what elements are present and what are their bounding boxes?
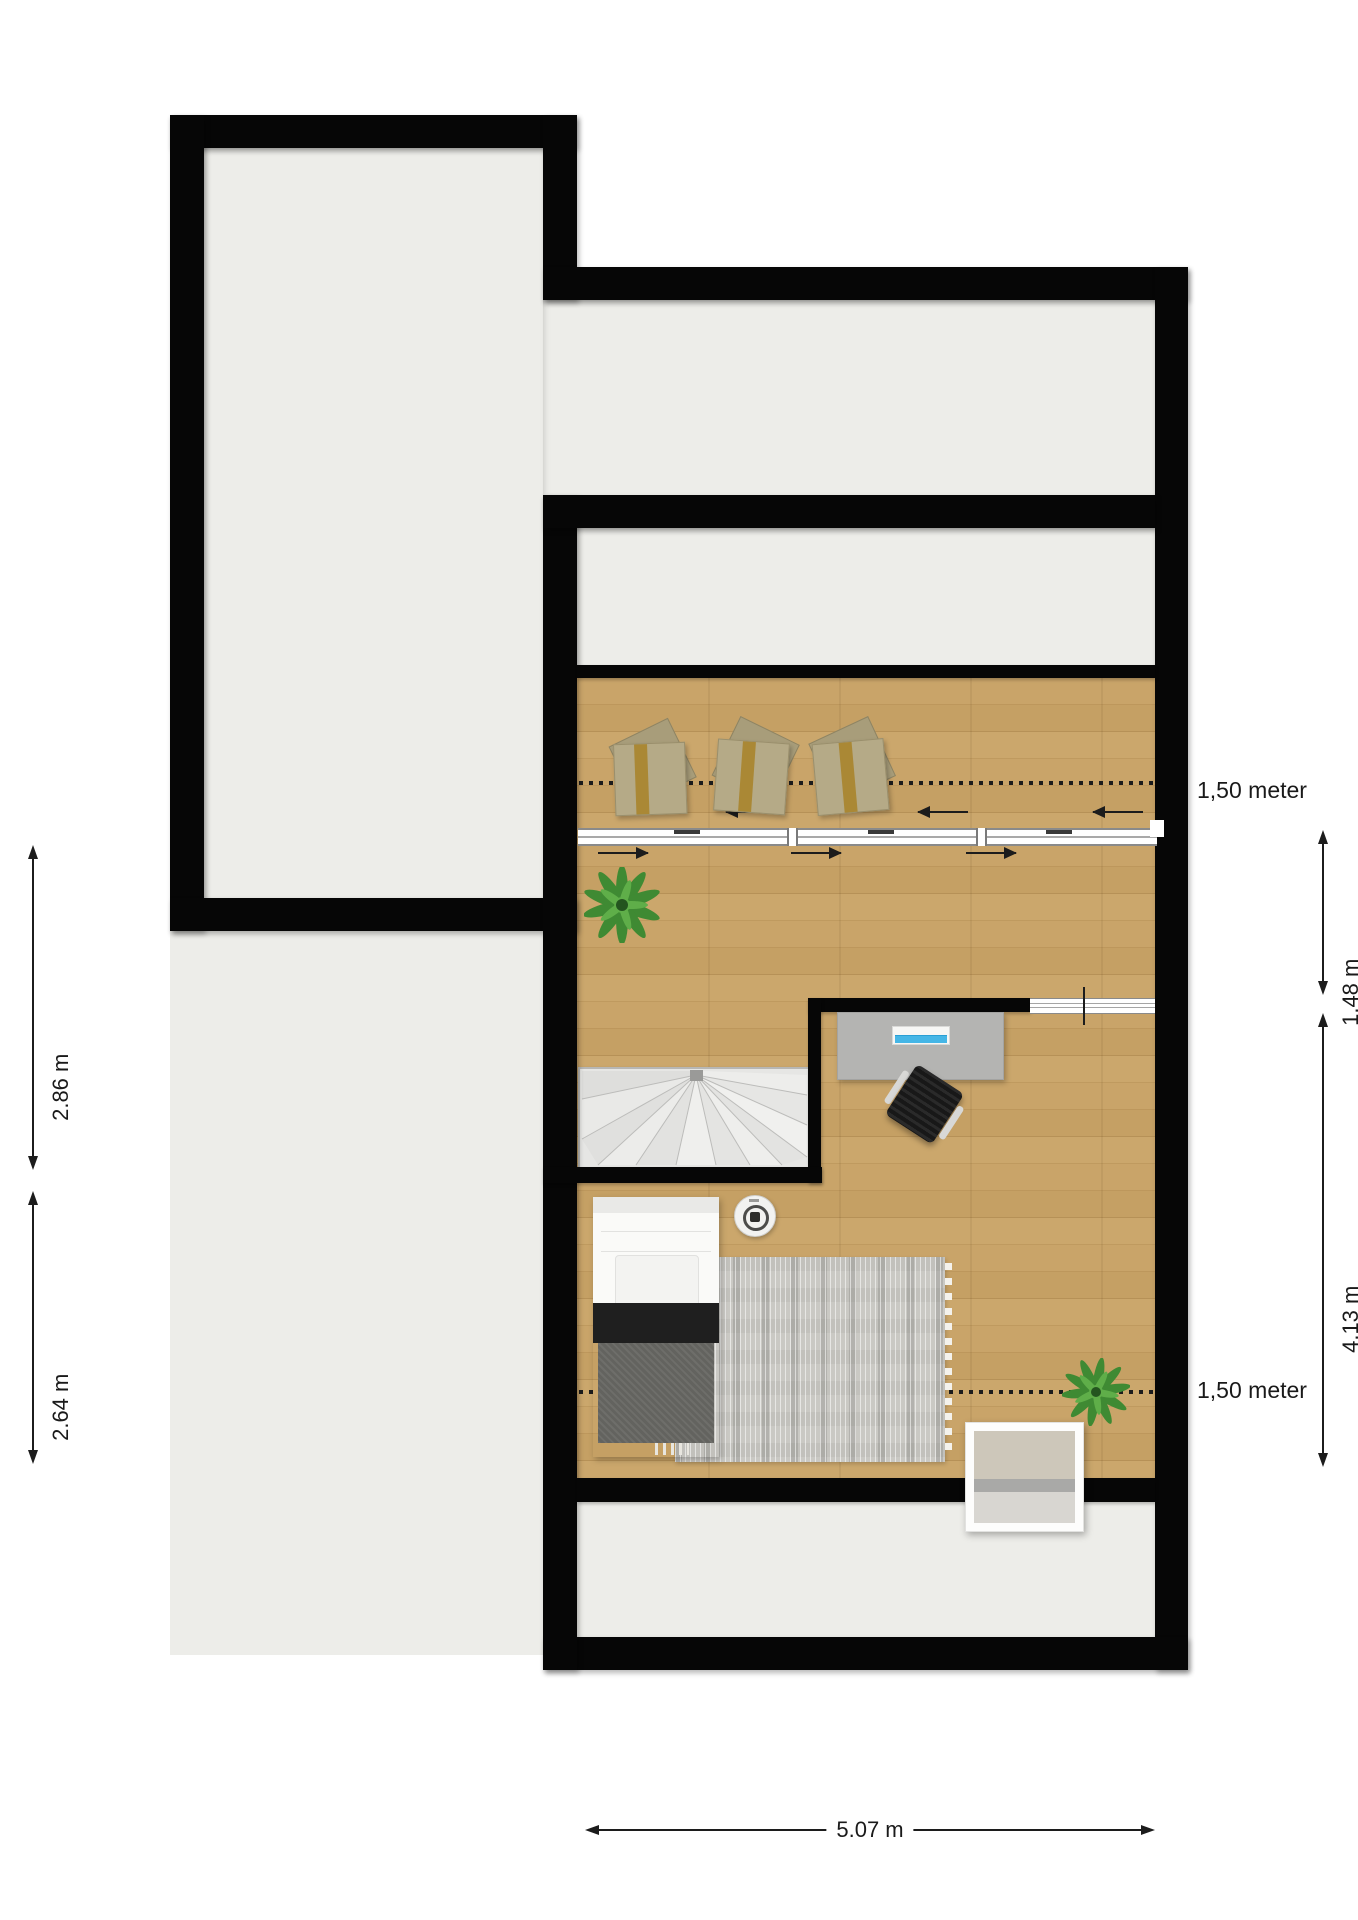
wall-desk-alcove-left (808, 998, 821, 1183)
dimension-right-lower-label: 4.13 m (1337, 1280, 1358, 1359)
headroom-label-upper: 1,50 meter (1197, 777, 1307, 804)
bed-blanket-fold (593, 1303, 719, 1343)
slide-arrow-right (791, 852, 841, 854)
wall-right-wing-top (543, 267, 1188, 300)
right-wing-top-strip-floor (543, 300, 1155, 495)
slide-arrow-left (918, 811, 968, 813)
dimension-right-upper-label: 1.48 m (1337, 952, 1358, 1031)
spiral-stairs (578, 1067, 811, 1169)
window-divider (976, 828, 987, 846)
dimension-left-lower: 2.64 m (19, 1191, 47, 1464)
dimension-bottom: 5.07 m (585, 1816, 1155, 1844)
laptop (892, 1026, 950, 1045)
wall-main-room-top (577, 665, 1155, 678)
plant-icon (584, 867, 660, 948)
alcove-window-tick (1083, 987, 1085, 1025)
plant-icon (1062, 1358, 1130, 1431)
wall-right-wing-bottom (543, 1637, 1188, 1670)
gift-box (613, 728, 690, 817)
alcove-sliding-window (1030, 998, 1155, 1014)
dimension-bottom-label: 5.07 m (826, 1817, 913, 1843)
window-divider (787, 828, 798, 846)
headroom-label-lower: 1,50 meter (1197, 1377, 1307, 1404)
wall-left-room-top (170, 115, 577, 148)
cabinet (965, 1422, 1084, 1532)
bed-blanket (598, 1343, 714, 1443)
slide-arrow-right (598, 852, 648, 854)
dimension-left-lower-label: 2.64 m (47, 1367, 75, 1446)
smoke-detector-icon (734, 1195, 776, 1237)
wall-desk-alcove-top (808, 998, 1030, 1012)
laptop-screen (895, 1035, 947, 1043)
rug-fringe (945, 1263, 952, 1456)
upper-left-room-floor (204, 148, 543, 898)
wall-left-room-left (170, 115, 204, 931)
dimension-left-upper-label: 2.86 m (47, 1047, 75, 1126)
wall-right-wing-right (1155, 267, 1188, 1670)
floor-plan-page: 1,50 meter 1,50 meter 1.48 m 4.13 m 2.86… (0, 0, 1358, 1920)
window-end-cap (1150, 820, 1164, 837)
right-wing-middle-strip-floor (577, 528, 1155, 665)
slide-arrow-right (966, 852, 1016, 854)
bed-headboard (593, 1197, 719, 1214)
gift-box (713, 725, 793, 816)
dimension-left-upper: 2.86 m (19, 845, 47, 1170)
dimension-right-lower: 4.13 m (1309, 1013, 1337, 1467)
slide-arrow-left (1093, 811, 1143, 813)
bed (593, 1197, 719, 1457)
wall-left-room-bottom (170, 898, 577, 931)
wall-inner-upper (543, 495, 1155, 528)
bed-blanket-fringe (655, 1443, 689, 1455)
wall-right-wing-left (543, 495, 577, 1670)
stairs-treads (580, 1069, 809, 1167)
gift-box (810, 724, 891, 816)
wall-stairs-bottom (543, 1167, 822, 1183)
bed-pillow (615, 1255, 699, 1309)
dimension-right-upper: 1.48 m (1309, 830, 1337, 995)
open-attic-area-floor (170, 931, 543, 1655)
roof-window-row (578, 828, 1157, 846)
